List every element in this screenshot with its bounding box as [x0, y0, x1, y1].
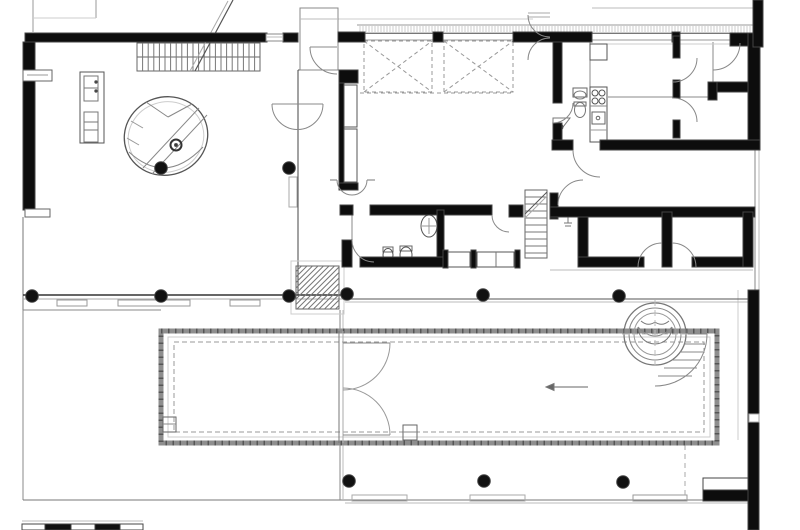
burner	[599, 98, 605, 104]
egg-partition	[146, 102, 168, 117]
wall	[339, 70, 358, 83]
basin	[574, 91, 586, 99]
column-dot	[283, 162, 296, 175]
pool	[161, 300, 717, 443]
wall	[673, 80, 680, 98]
column-dot	[478, 475, 491, 488]
wall	[550, 207, 755, 217]
pool-door-arc	[343, 343, 390, 390]
door-arc	[673, 58, 697, 82]
closet-divider	[515, 250, 520, 268]
door-arc	[673, 98, 697, 122]
stair-break-line2	[525, 196, 547, 218]
hall-cupboard-panel	[344, 129, 357, 182]
wall	[342, 240, 352, 267]
wall	[283, 33, 298, 42]
vestibule-outline	[300, 8, 338, 70]
bidet-tank	[383, 247, 393, 252]
closet-box	[448, 252, 470, 267]
wall	[338, 32, 365, 42]
radiator	[289, 177, 297, 207]
north-glazing-band	[338, 19, 763, 33]
living-furniture	[57, 72, 297, 306]
column-dot	[155, 290, 168, 303]
pool-inner-edge	[168, 337, 710, 437]
wall	[433, 32, 443, 42]
pool-door-arc	[343, 388, 390, 435]
door-arc	[573, 150, 600, 177]
wall	[553, 42, 562, 103]
egg-partition	[143, 108, 199, 168]
floor-plan-drawing	[0, 0, 800, 530]
column-dot	[341, 288, 354, 301]
floor-plan-page	[0, 0, 800, 530]
wall	[339, 83, 344, 183]
egg-partition	[168, 104, 192, 117]
column-dot	[343, 475, 356, 488]
slider-track	[230, 300, 260, 306]
wall	[340, 205, 353, 215]
wall	[708, 82, 717, 100]
wall	[673, 120, 680, 138]
wall	[513, 32, 592, 42]
scale-bar-black-segment	[95, 524, 120, 530]
wall	[23, 42, 35, 70]
column-dot	[283, 290, 296, 303]
fridge	[590, 44, 607, 60]
entry-vestibule	[300, 8, 338, 70]
burner	[592, 98, 598, 104]
closet-divider	[471, 250, 476, 268]
hall-cupboard-panel	[344, 85, 357, 127]
basement-stair	[525, 190, 547, 258]
wall	[552, 140, 573, 150]
wall	[23, 81, 35, 210]
lane-arrow-head	[546, 384, 554, 391]
door-arc	[553, 103, 573, 123]
exterior-step-tread	[703, 478, 748, 490]
closet-divider	[443, 250, 448, 268]
scale-bar	[22, 521, 143, 530]
column-dot	[617, 476, 630, 489]
slider-track	[118, 300, 190, 306]
wall	[753, 0, 763, 47]
wall	[748, 33, 760, 143]
exterior-step-riser	[703, 490, 748, 501]
column-dot	[613, 290, 626, 303]
living-furniture-part	[95, 90, 97, 92]
wall	[370, 205, 492, 215]
wall	[578, 257, 644, 267]
skylight-voids	[364, 41, 513, 92]
wall	[743, 212, 753, 267]
door-arc	[713, 43, 740, 70]
egg-tick	[131, 121, 143, 128]
west-sill	[25, 209, 50, 217]
pool-waterline-dashed	[174, 342, 704, 432]
cabinet-lower	[84, 112, 98, 142]
burner	[599, 90, 605, 96]
pool-border	[161, 331, 717, 443]
slider-track	[57, 300, 87, 306]
wall	[339, 183, 358, 190]
wall	[662, 212, 672, 267]
kitchen-fixtures-part	[596, 116, 600, 120]
egg-flue-center	[175, 144, 178, 147]
column-dot	[155, 162, 168, 175]
east-wall-gap	[749, 414, 759, 422]
terrace-fireplace	[253, 261, 379, 314]
living-furniture-part	[95, 81, 97, 83]
wall	[509, 205, 523, 217]
door-arc	[492, 215, 509, 232]
wall	[25, 33, 267, 42]
toilet-bowl	[575, 103, 586, 118]
fireplace-hatch	[253, 266, 379, 309]
column-dot	[477, 289, 490, 302]
pool-border-hatch	[161, 331, 717, 443]
door-arc	[558, 180, 583, 205]
wall	[600, 140, 760, 150]
column-dot	[26, 290, 39, 303]
scale-bar-outline	[22, 524, 143, 530]
burner	[592, 90, 598, 96]
kitchen-fixtures	[590, 44, 607, 142]
thick-walls	[23, 0, 763, 530]
stair-outline	[525, 190, 547, 258]
kitchen-sink	[592, 112, 605, 124]
scale-bar-black-segment	[45, 524, 71, 530]
wall	[673, 36, 680, 58]
wall	[748, 290, 759, 530]
